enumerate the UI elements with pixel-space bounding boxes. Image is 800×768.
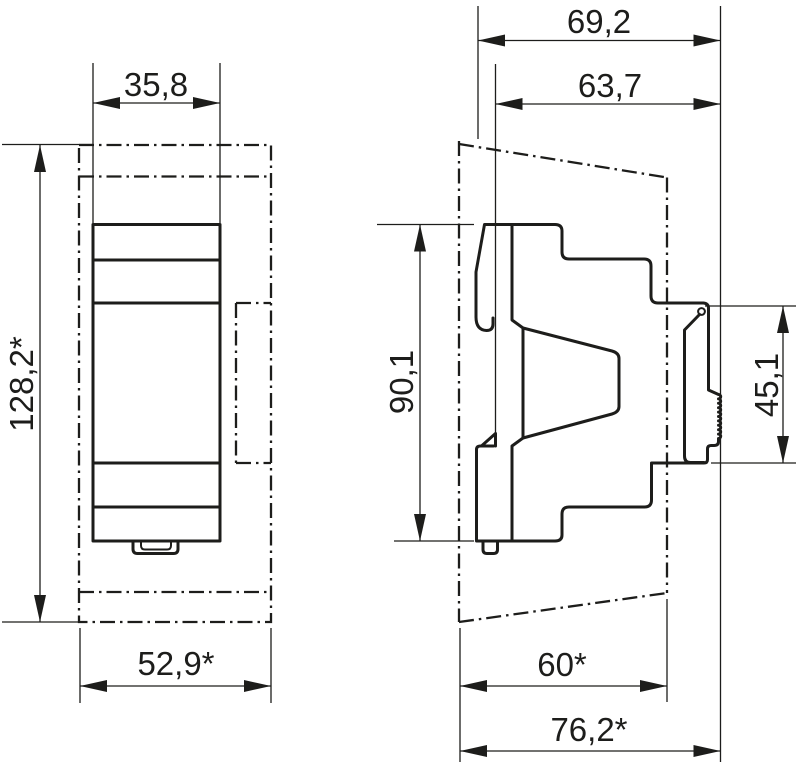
dim-body-height-label: 90,1 bbox=[383, 350, 420, 414]
dim-front-height-label: 128,2* bbox=[3, 336, 40, 432]
technical-drawing: 35,8 128,2* 52,9* 69,2 63,7 90,1 45,1 bbox=[0, 0, 800, 768]
dim-panel-depth-label: 60* bbox=[537, 646, 587, 683]
dim-rear-height-label: 45,1 bbox=[748, 353, 785, 417]
dim-depth-from-rail-label: 63,7 bbox=[578, 67, 642, 104]
side-view bbox=[459, 141, 721, 622]
side-panel-bottom-slope bbox=[459, 593, 667, 622]
side-din-clip-tab bbox=[483, 541, 498, 554]
dim-overall-depth: 76,2* bbox=[460, 711, 721, 757]
dim-depth-total-label: 69,2 bbox=[567, 3, 631, 40]
dim-front-bottom-width-label: 52,9* bbox=[137, 645, 214, 682]
dim-front-width-label: 35,8 bbox=[124, 66, 188, 103]
side-panel-top-slope bbox=[459, 144, 667, 178]
side-ribbed-taper bbox=[523, 328, 619, 438]
front-panel-side-cutout bbox=[236, 303, 271, 463]
dim-depth-from-rail: 63,7 bbox=[496, 64, 721, 433]
dim-front-bottom-width: 52,9* bbox=[80, 628, 271, 703]
side-latch-barb bbox=[482, 434, 496, 447]
dim-overall-depth-label: 76,2* bbox=[550, 711, 627, 748]
front-view bbox=[79, 145, 271, 622]
side-front-face bbox=[512, 225, 523, 542]
front-body-section-lines bbox=[93, 260, 220, 507]
front-body-outline bbox=[93, 225, 220, 542]
side-clip-arm bbox=[685, 315, 705, 463]
technical-drawing-page: 35,8 128,2* 52,9* 69,2 63,7 90,1 45,1 bbox=[0, 0, 800, 768]
dim-front-width: 35,8 bbox=[93, 63, 220, 223]
side-clip-pivot bbox=[698, 308, 705, 315]
front-panel-outline bbox=[79, 145, 271, 622]
